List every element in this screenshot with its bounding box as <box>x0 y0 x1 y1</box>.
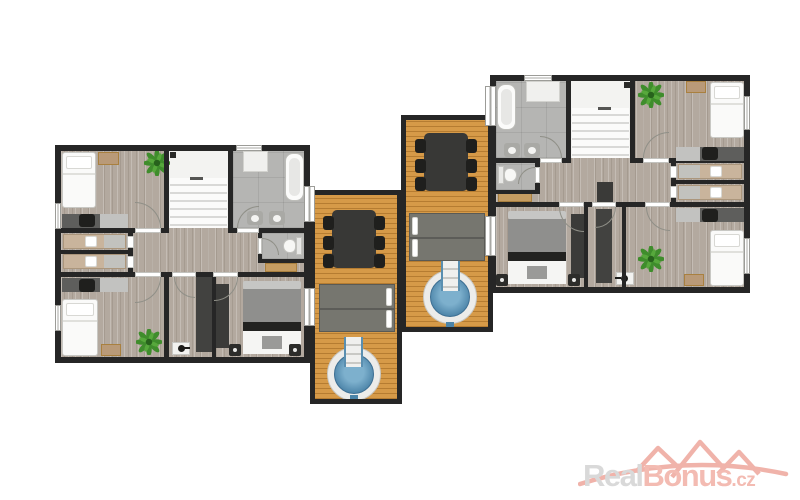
bed-pillow <box>714 234 740 247</box>
wall <box>61 250 133 254</box>
desk-chair <box>79 214 95 227</box>
double-bed-blanket <box>508 219 566 252</box>
nightstand <box>686 81 706 93</box>
window <box>744 96 750 130</box>
chair-icon <box>466 159 477 173</box>
desk-chair <box>702 209 718 222</box>
bathtub-basin <box>501 89 512 125</box>
lounger-pillow <box>412 217 418 235</box>
desk-light-top <box>676 147 700 161</box>
door-threshold <box>127 256 134 268</box>
stair-treads <box>572 108 629 158</box>
wall <box>496 158 540 163</box>
sink-icon <box>524 143 540 157</box>
dining-table <box>424 133 468 191</box>
nightstand-lamp <box>496 274 508 286</box>
hot-tub-steps <box>441 261 460 291</box>
door-threshold <box>540 158 562 163</box>
window <box>236 145 262 151</box>
double-bed-fold <box>508 252 566 261</box>
sink-icon <box>504 143 520 157</box>
sink-icon <box>269 211 285 225</box>
bed-blanket-fold <box>711 103 743 105</box>
bathtub-icon <box>497 84 516 130</box>
hall-cabinet <box>597 182 613 202</box>
bed-blanket-fold <box>63 173 95 175</box>
desk-light-top <box>676 208 700 222</box>
chair-icon <box>415 177 426 191</box>
tan-dresser <box>265 263 297 272</box>
window <box>524 75 552 81</box>
lounger-pillow <box>386 288 392 306</box>
door-threshold <box>127 236 134 248</box>
wall <box>238 272 304 277</box>
bunk-bed-sheet <box>679 165 700 178</box>
plant-icon <box>136 329 162 355</box>
double-lounger <box>319 284 395 332</box>
bed-pillow <box>85 236 97 247</box>
bed-bench <box>262 336 282 349</box>
double-bed-headboard <box>243 281 301 289</box>
chair-icon <box>323 236 334 250</box>
single-bed <box>710 230 744 286</box>
wall <box>61 228 135 233</box>
wall <box>164 151 169 233</box>
terrace-door <box>304 288 315 326</box>
wall <box>55 357 310 363</box>
single-bed <box>62 152 96 208</box>
wall-cabinet <box>243 151 268 172</box>
nightstand <box>684 274 704 286</box>
bathtub-icon <box>285 153 304 201</box>
door-threshold <box>670 186 677 198</box>
wall <box>55 145 310 151</box>
window <box>55 203 61 229</box>
lounger-pillow <box>412 239 418 257</box>
chair-icon <box>323 254 334 268</box>
window <box>304 186 315 222</box>
faucet-stem <box>615 277 621 279</box>
terrace-door <box>485 216 496 256</box>
watermark-brand-bonus: Bonus <box>642 458 731 493</box>
door-threshold <box>643 158 669 163</box>
lounger-seam <box>410 237 484 239</box>
watermark-brand-real: Real <box>583 458 642 493</box>
watermark: RealBonus.cz <box>578 424 790 498</box>
desk-light-top <box>100 214 128 228</box>
wall <box>635 158 643 163</box>
nightstand <box>98 152 119 165</box>
chair-icon <box>415 139 426 153</box>
double-bed-fold <box>243 322 301 331</box>
wall <box>161 228 169 233</box>
wall <box>562 158 566 163</box>
plant-icon <box>638 82 664 108</box>
faucet-stem <box>184 347 190 349</box>
stair-post <box>170 152 176 158</box>
wall <box>566 81 571 163</box>
stair-nosing <box>190 177 203 180</box>
double-lounger <box>409 213 485 261</box>
bathtub-basin <box>289 158 300 196</box>
wall <box>670 202 744 207</box>
wall <box>310 190 402 195</box>
bunk-bed-sheet <box>104 255 125 268</box>
chair-icon <box>415 159 426 173</box>
wall <box>584 207 588 287</box>
nightstand-lamp <box>229 344 241 356</box>
wall <box>61 272 135 277</box>
wall-cabinet <box>526 81 560 102</box>
wall <box>401 327 493 332</box>
floor-plan-canvas: RealBonus.cz <box>0 0 800 500</box>
single-bed <box>62 299 98 356</box>
closet-unit <box>196 277 212 352</box>
bed-blanket-fold <box>711 251 743 253</box>
bed-blanket-fold <box>63 320 97 322</box>
wall <box>496 202 559 207</box>
wall <box>630 81 635 163</box>
window <box>744 238 750 274</box>
bed-pillow <box>66 303 94 316</box>
wall <box>259 228 304 233</box>
double-bed-headboard <box>508 211 566 219</box>
chair-icon <box>374 216 385 230</box>
chair-icon <box>323 216 334 230</box>
chair-icon <box>374 254 385 268</box>
bed-pillow <box>85 256 97 267</box>
wall <box>616 202 645 207</box>
wall <box>258 259 304 263</box>
desk-chair <box>702 147 718 160</box>
wall <box>310 399 402 404</box>
wall <box>401 115 493 120</box>
bed-bench <box>527 266 547 279</box>
wall <box>196 272 213 277</box>
window <box>485 86 496 126</box>
stair-treads <box>170 178 227 228</box>
bunk-bed-sheet <box>104 235 125 248</box>
wall <box>622 207 626 287</box>
chair-icon <box>374 236 385 250</box>
wall <box>676 161 744 163</box>
toilet-tank <box>296 237 302 255</box>
wall <box>490 287 750 293</box>
window <box>55 305 61 331</box>
toilet-icon <box>283 239 296 253</box>
bed-pillow <box>714 86 740 99</box>
bed-pillow <box>66 156 92 169</box>
lounger-seam <box>320 308 394 310</box>
toilet-icon <box>504 168 517 182</box>
door-threshold <box>535 167 540 183</box>
stair-nosing <box>598 107 611 110</box>
door-threshold <box>670 166 677 178</box>
nightstand <box>101 344 121 356</box>
watermark-brand-tld: .cz <box>731 470 755 491</box>
desk-chair <box>79 279 95 292</box>
watermark-brand: RealBonus.cz <box>583 458 755 499</box>
single-bed <box>710 82 744 138</box>
wall <box>671 180 744 184</box>
chair-icon <box>466 139 477 153</box>
wall <box>496 190 540 194</box>
hot-tub-steps <box>344 337 363 367</box>
bed-pillow <box>710 187 722 198</box>
wall <box>304 145 310 363</box>
plant-icon <box>638 246 664 272</box>
desk-light-top <box>100 278 128 292</box>
wall <box>228 151 233 233</box>
double-bed-blanket <box>243 289 301 322</box>
door-threshold <box>237 228 259 233</box>
dining-table <box>332 210 376 268</box>
chair-icon <box>466 177 477 191</box>
nightstand-lamp <box>289 344 301 356</box>
wall <box>164 277 169 357</box>
bunk-bed-sheet <box>679 186 700 199</box>
nightstand-lamp <box>568 274 580 286</box>
bed-pillow <box>710 166 722 177</box>
lounger-pillow <box>386 310 392 328</box>
door-threshold <box>135 228 161 233</box>
wall <box>401 115 406 332</box>
